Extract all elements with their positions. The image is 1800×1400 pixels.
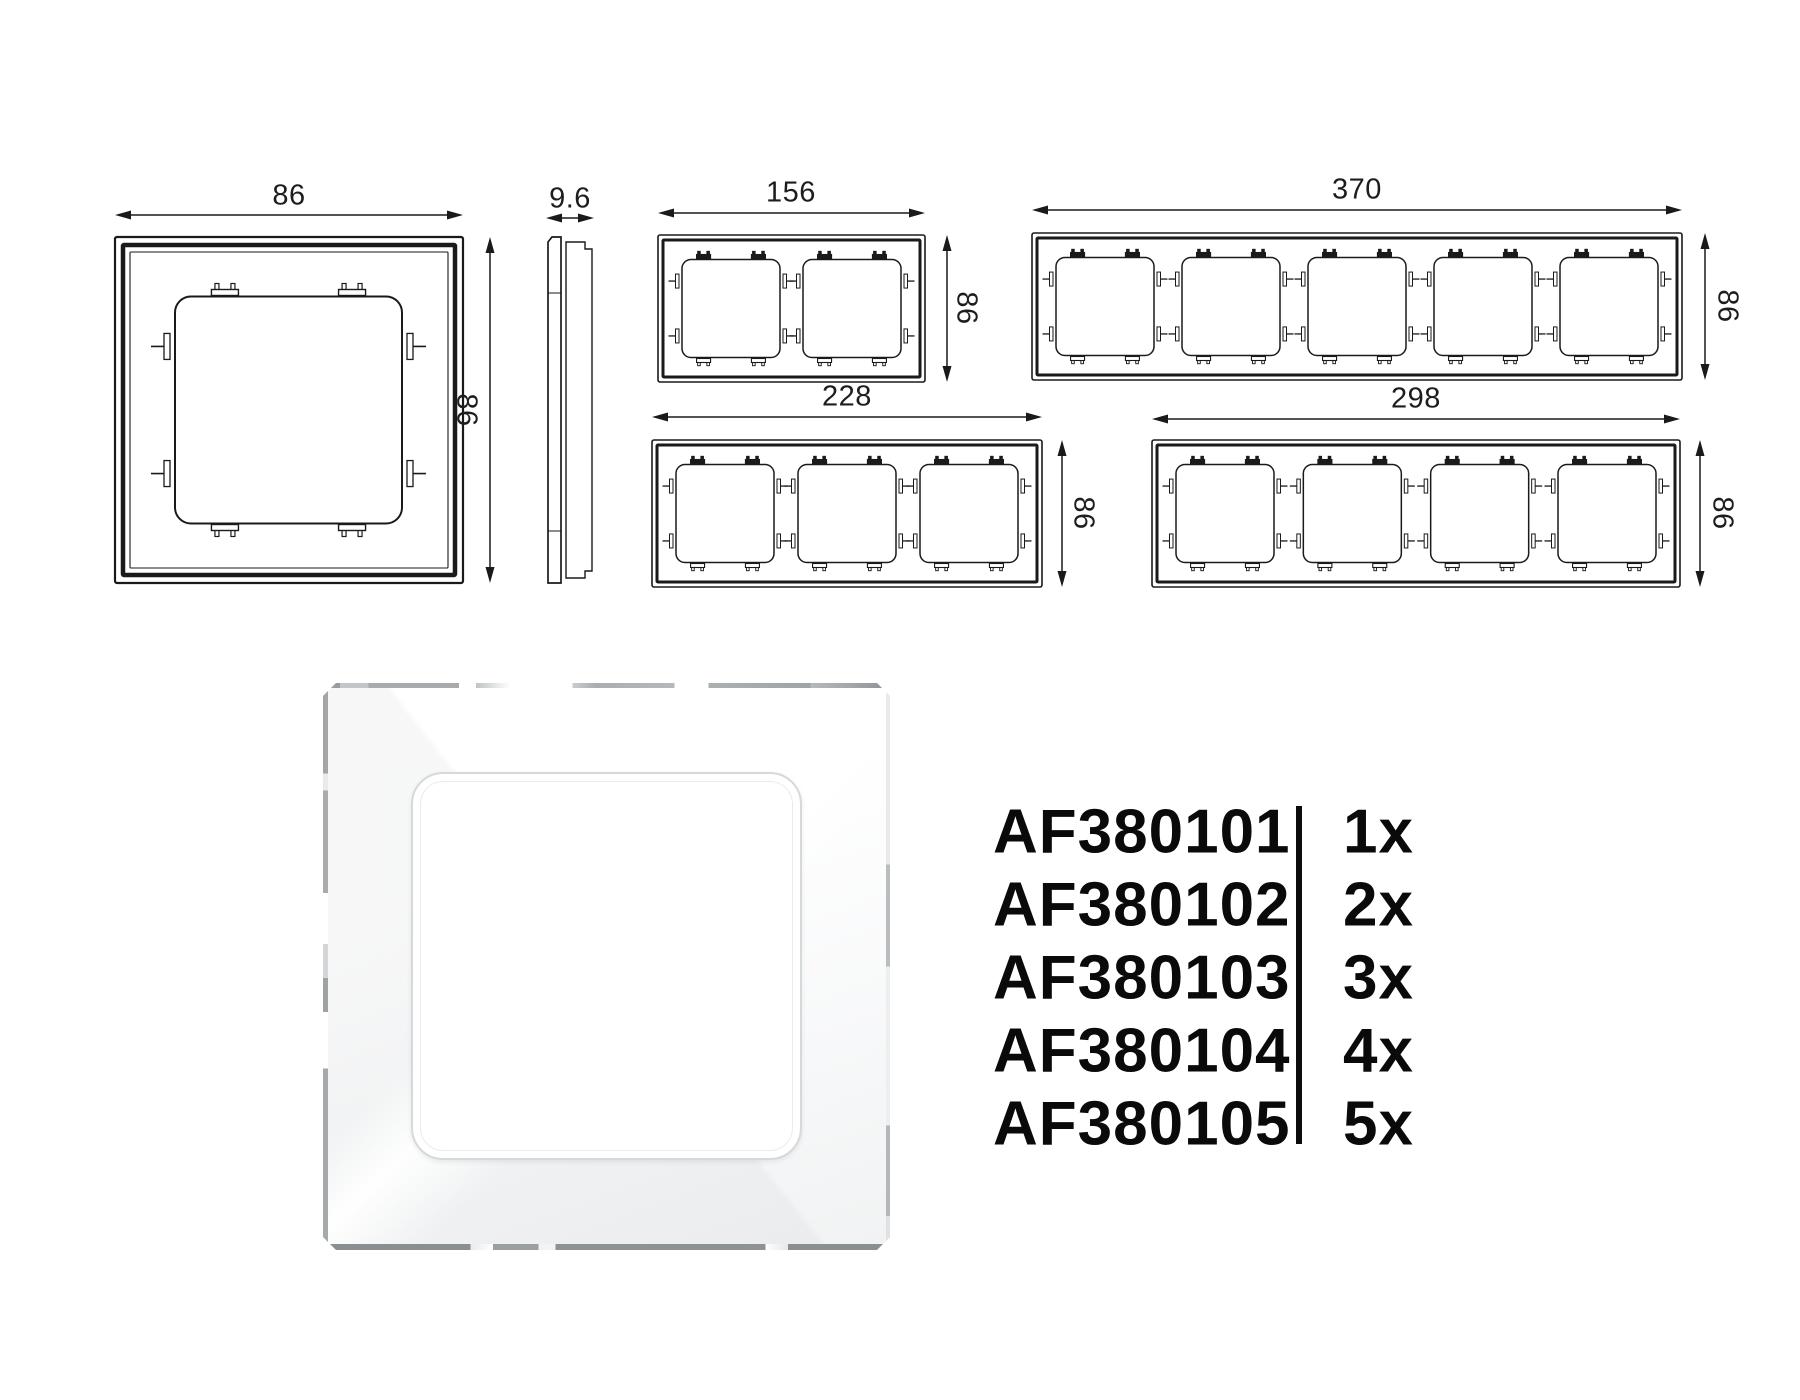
- product-qty: 3x: [1343, 942, 1414, 1013]
- dim-label-3gang-width: 228: [822, 381, 872, 414]
- dim-label-4gang-width: 298: [1391, 383, 1441, 416]
- product-sku: AF380101: [993, 796, 1291, 867]
- product-row: AF380102 2x: [993, 868, 1553, 941]
- dim-label-4gang-height: 86: [1706, 496, 1739, 529]
- product-row: AF380103 3x: [993, 941, 1553, 1014]
- product-list-divider: [1296, 806, 1302, 1144]
- product-qty: 5x: [1343, 1088, 1414, 1159]
- frame-top-edge: [323, 683, 890, 688]
- dim-label-2gang-width: 156: [766, 177, 816, 210]
- frame-bottom-edge: [323, 1244, 890, 1250]
- dim-label-1gang-width: 86: [272, 180, 305, 213]
- dim-label-5gang-width: 370: [1332, 174, 1382, 207]
- product-sku: AF380105: [993, 1088, 1291, 1159]
- dim-label-side-depth: 9.6: [549, 183, 591, 216]
- product-row: AF380101 1x: [993, 795, 1553, 868]
- frame-opening: [411, 772, 802, 1160]
- product-sku: AF380102: [993, 869, 1291, 940]
- product-qty: 1x: [1343, 796, 1414, 867]
- product-qty: 4x: [1343, 1015, 1414, 1086]
- technical-drawings-svg: [0, 0, 1800, 1400]
- dim-label-1gang-height: 86: [450, 393, 483, 426]
- product-qty: 2x: [1343, 869, 1414, 940]
- dim-label-2gang-height: 86: [950, 291, 983, 324]
- product-list: AF380101 1x AF380102 2x AF380103 3x AF38…: [993, 795, 1553, 1160]
- frame-right-edge: [886, 683, 890, 1250]
- product-row: AF380104 4x: [993, 1014, 1553, 1087]
- product-sku: AF380103: [993, 942, 1291, 1013]
- product-photo-frame: [323, 683, 890, 1250]
- dim-label-5gang-height: 86: [1711, 289, 1744, 322]
- product-sku: AF380104: [993, 1015, 1291, 1086]
- spec-sheet: 86 86 9.6 156 86 370 86 228 86 298 86 AF…: [0, 0, 1800, 1400]
- product-row: AF380105 5x: [993, 1087, 1553, 1160]
- frame-left-edge: [323, 683, 328, 1250]
- dim-label-3gang-height: 86: [1067, 496, 1100, 529]
